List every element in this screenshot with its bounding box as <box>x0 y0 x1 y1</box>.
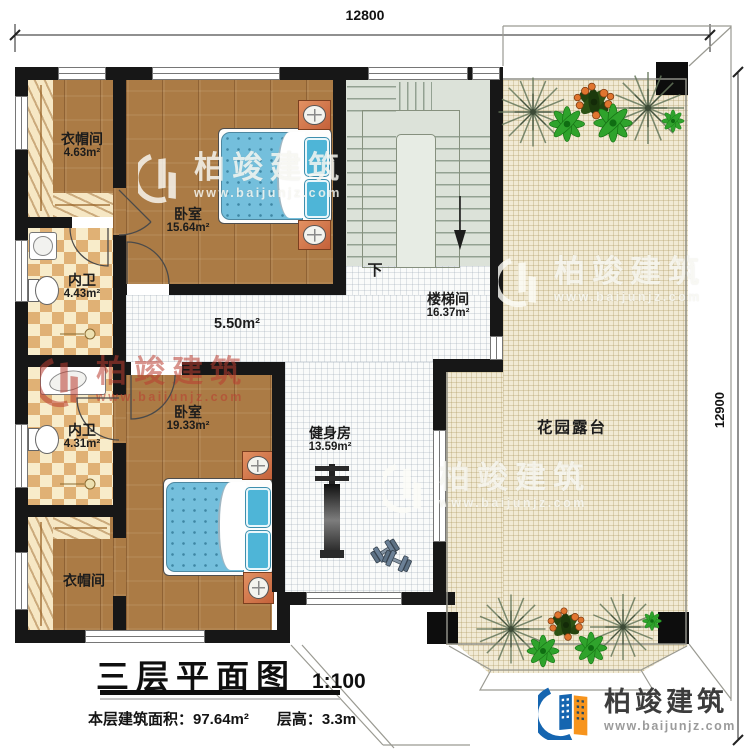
nightstand <box>298 100 331 130</box>
title-underline <box>100 690 340 695</box>
wall-segment <box>169 284 346 295</box>
brand-logo: 柏竣建筑 www.baijunjz.com <box>538 682 736 740</box>
bed-pillow <box>305 138 329 176</box>
wall-segment <box>182 362 285 375</box>
gym-floor <box>285 362 433 592</box>
bed-sheet <box>218 482 246 570</box>
floor-height-text: 层高：3.3m <box>277 708 356 729</box>
door-opening <box>113 538 126 596</box>
brand-url: www.baijunjz.com <box>604 719 736 733</box>
nightstand <box>298 220 331 250</box>
window <box>368 67 468 80</box>
toilet <box>28 425 59 452</box>
terrace-column <box>427 612 458 644</box>
brand-name: 柏竣建筑 <box>604 689 736 716</box>
room-label-bedroom-top: 卧室15.64m² <box>167 207 210 235</box>
closet-rack <box>53 517 110 539</box>
room-label-hallway: 5.50m² <box>214 317 260 333</box>
door-opening <box>113 188 126 235</box>
bed <box>163 478 273 576</box>
sink <box>29 232 57 260</box>
closet-rack <box>28 80 53 217</box>
dimension-top: 12800 <box>325 7 405 23</box>
stair-down-label: 下 <box>367 263 382 280</box>
nightstand <box>243 572 274 604</box>
window <box>472 67 500 80</box>
floor-plan-canvas: 柏竣建筑 www.baijunjz.com 柏竣建筑 www.baijunjz.… <box>0 0 750 754</box>
brand-logo-icon <box>538 682 598 740</box>
window <box>15 240 28 302</box>
terrace-column <box>658 612 689 644</box>
window <box>15 96 28 150</box>
title-info: 本层建筑面积：97.64m² 层高：3.3m <box>88 708 356 729</box>
wall-segment <box>433 359 503 372</box>
wall-segment <box>490 67 503 359</box>
wall-segment <box>113 284 127 295</box>
room-label-closet-top: 衣帽间4.63m² <box>61 132 103 160</box>
window <box>152 67 280 80</box>
title-underline-thin <box>100 698 340 700</box>
room-label-gym: 健身房13.59m² <box>309 426 352 454</box>
stair-mid-flight <box>396 134 436 268</box>
bed-sheet <box>277 132 305 218</box>
vanity-sink <box>40 366 106 395</box>
terrace-column <box>656 62 688 95</box>
closet-rack <box>53 193 113 217</box>
room-label-stairwell: 楼梯间16.37m² <box>427 292 470 320</box>
window <box>15 424 28 488</box>
room-label-terrace: 花园露台 <box>537 419 607 436</box>
window <box>15 552 28 610</box>
window <box>58 67 106 80</box>
terrace-sliding-door <box>433 430 446 542</box>
wall-segment <box>333 67 346 295</box>
window <box>306 592 402 605</box>
wall-segment <box>15 217 72 228</box>
bed <box>218 128 332 224</box>
window <box>85 630 205 643</box>
wall-segment <box>113 362 131 375</box>
closet-rack <box>28 517 53 630</box>
wall-segment <box>272 375 285 592</box>
bed-pillow <box>246 531 270 570</box>
wall-segment <box>15 505 113 517</box>
terrace-floor <box>503 80 688 645</box>
terrace-door <box>490 336 503 360</box>
weight-bench <box>313 464 351 562</box>
toilet <box>28 276 59 303</box>
stair-steps <box>399 82 432 110</box>
floor-area-text: 本层建筑面积：97.64m² <box>88 708 249 729</box>
wall-segment <box>15 355 113 367</box>
nightstand <box>242 451 274 480</box>
room-label-bath-top: 内卫4.43m² <box>64 273 100 301</box>
room-label-bedroom-bottom: 卧室19.33m² <box>167 405 210 433</box>
dimension-right: 12900 <box>712 392 727 428</box>
door-opening <box>113 395 126 443</box>
bed-pillow <box>305 180 329 218</box>
bed-pillow <box>246 488 270 527</box>
terrace-bay-floor <box>448 645 688 673</box>
room-label-bath-bottom: 内卫4.31m² <box>64 423 100 451</box>
room-label-closet-bottom: 衣帽间 <box>63 573 105 588</box>
